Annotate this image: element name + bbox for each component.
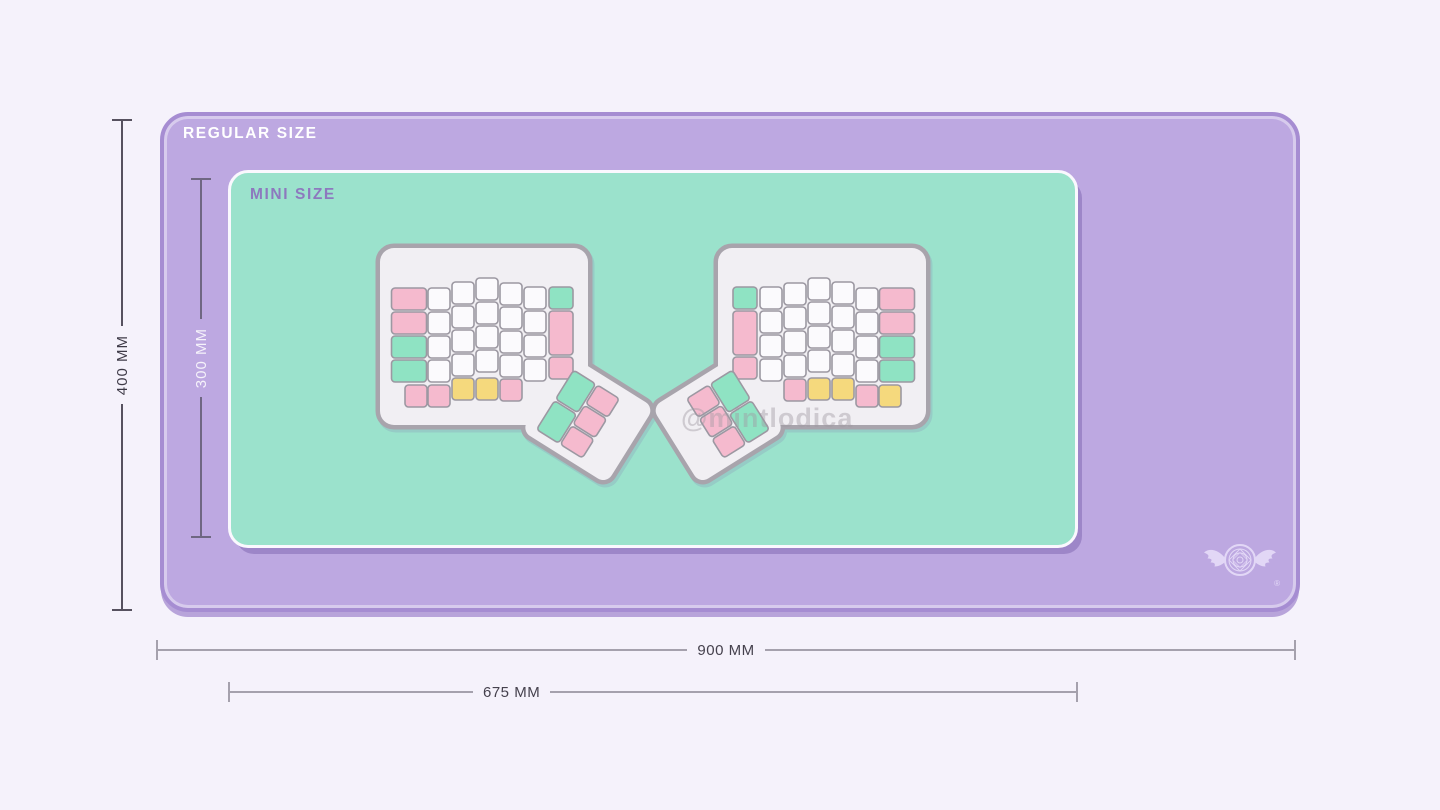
dimension-tick bbox=[112, 609, 132, 611]
dimension-line bbox=[550, 691, 1076, 693]
mini-size-label: MINI SIZE bbox=[250, 186, 336, 204]
dimension-line bbox=[200, 180, 202, 319]
dimension-line bbox=[230, 691, 473, 693]
regular-size-mat: REGULAR SIZE MINI SIZE @mintlodica bbox=[160, 112, 1300, 612]
deskmat-size-diagram: REGULAR SIZE MINI SIZE @mintlodica bbox=[0, 0, 1440, 810]
dimension-tick bbox=[191, 536, 211, 538]
winged-emblem-logo-icon: ® bbox=[1202, 536, 1278, 588]
dimension-label-675mm: 675 MM bbox=[473, 684, 550, 701]
dimension-line bbox=[765, 649, 1294, 651]
dimension-tick bbox=[1294, 640, 1296, 660]
watermark-text: @mintlodica bbox=[681, 403, 853, 434]
dimension-label-400mm: 400 MM bbox=[114, 326, 131, 404]
dimension-mini-width: 675 MM bbox=[228, 682, 1078, 702]
mini-size-mat: MINI SIZE @mintlodica bbox=[228, 170, 1078, 548]
dimension-regular-height: 400 MM bbox=[112, 119, 132, 611]
dimension-line bbox=[121, 404, 123, 609]
dimension-regular-width: 900 MM bbox=[156, 640, 1296, 660]
regular-size-label: REGULAR SIZE bbox=[183, 125, 318, 143]
registered-trademark-mark: ® bbox=[1274, 579, 1280, 588]
dimension-line bbox=[200, 397, 202, 536]
dimension-tick bbox=[1076, 682, 1078, 702]
dimension-line bbox=[121, 121, 123, 326]
dimension-mini-height: 300 MM bbox=[191, 178, 211, 538]
keyboard-right-half bbox=[646, 235, 936, 491]
dimension-line bbox=[158, 649, 687, 651]
keyboard-left-half bbox=[370, 235, 660, 491]
dimension-label-900mm: 900 MM bbox=[687, 642, 764, 659]
dimension-label-300mm: 300 MM bbox=[193, 319, 210, 397]
